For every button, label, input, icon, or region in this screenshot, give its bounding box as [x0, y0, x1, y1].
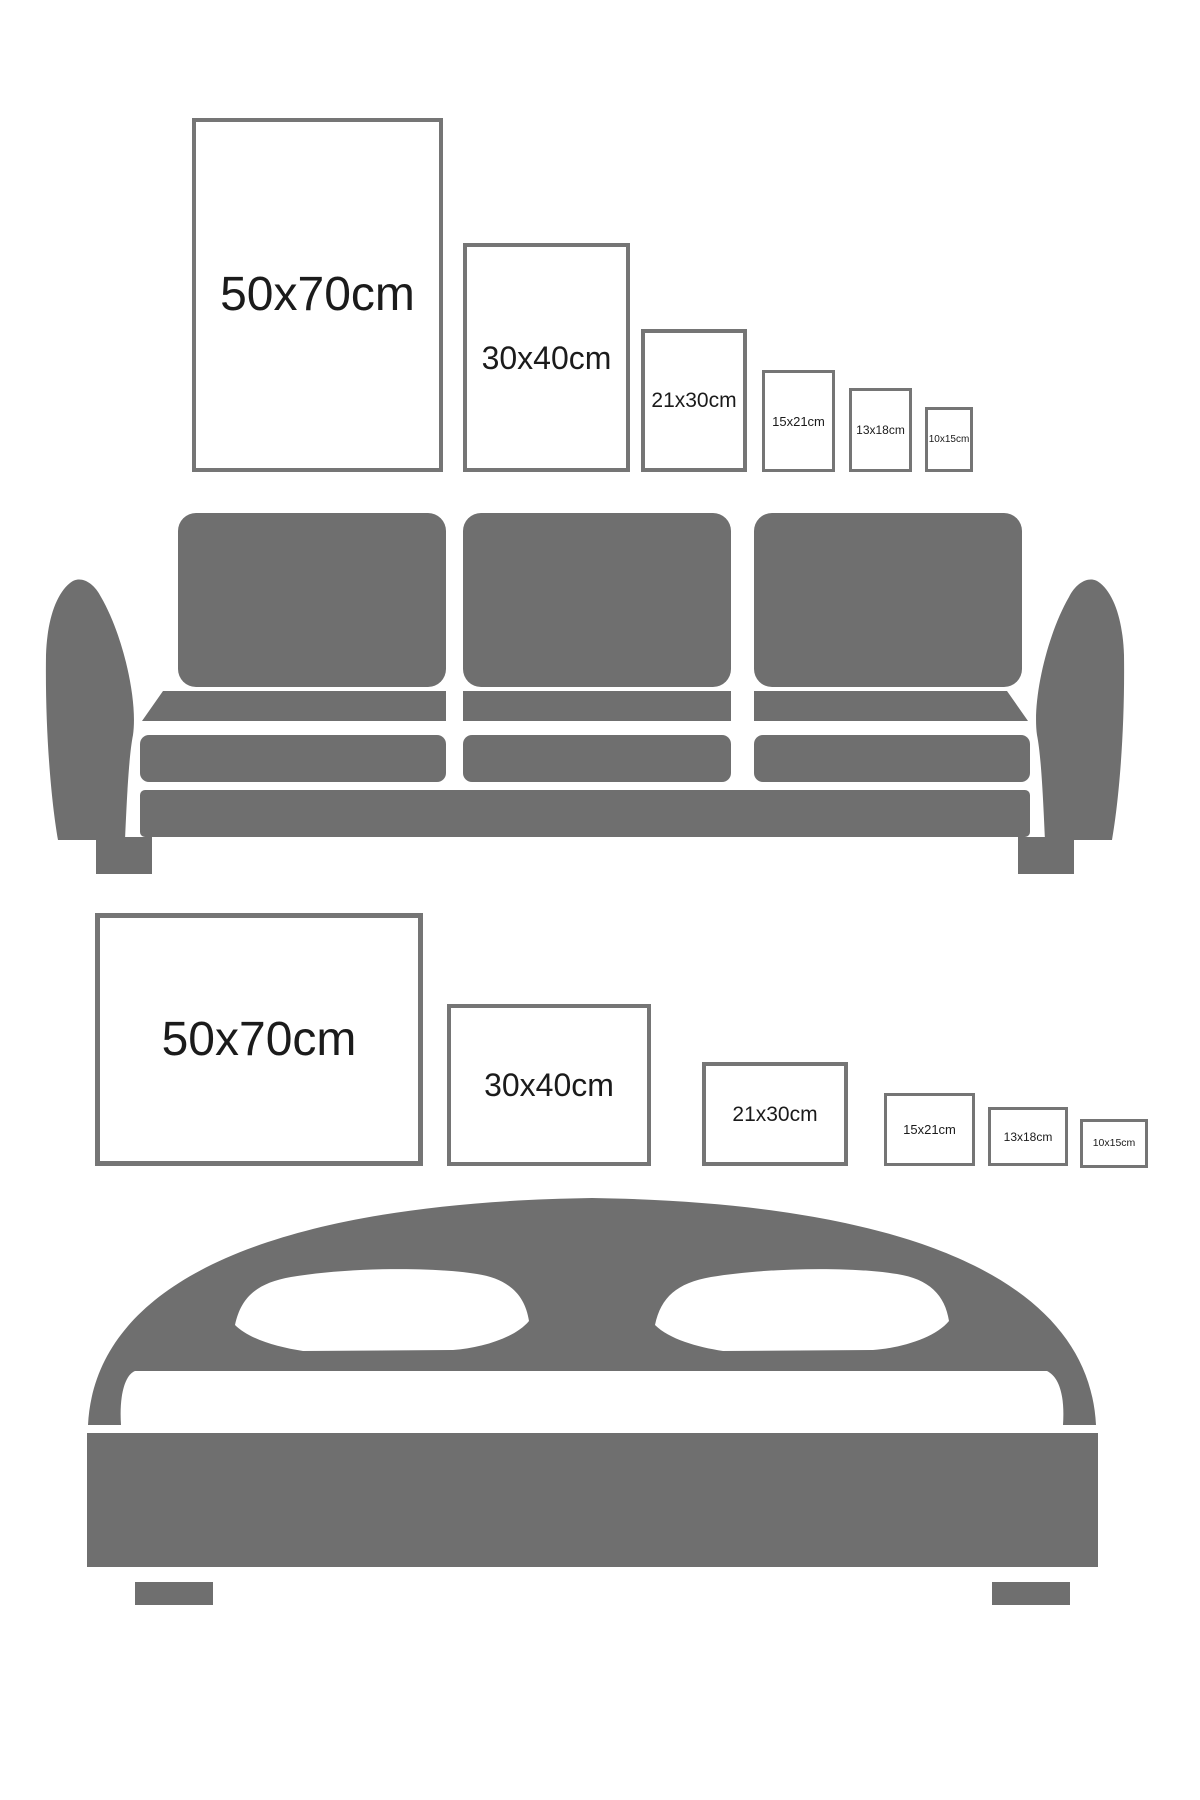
size-frame-landscape-30x40: 30x40cm	[447, 1004, 651, 1166]
sofa-base	[140, 790, 1030, 837]
size-label-30x40: 30x40cm	[484, 1069, 614, 1101]
poster-size-guide-infographic: 50x70cm 30x40cm 21x30cm 15x21cm 13x18cm …	[0, 0, 1200, 1800]
sofa-arm-left	[46, 579, 134, 840]
size-frame-landscape-50x70: 50x70cm	[95, 913, 423, 1166]
size-frame-portrait-15x21: 15x21cm	[762, 370, 835, 472]
size-label-13x18: 13x18cm	[1004, 1131, 1053, 1143]
size-label-13x18: 13x18cm	[856, 424, 905, 436]
size-frame-landscape-21x30: 21x30cm	[702, 1062, 848, 1166]
sofa-seat-deck	[142, 691, 1028, 721]
size-label-15x21: 15x21cm	[772, 415, 825, 428]
bed-base	[87, 1433, 1098, 1567]
bed-illustration	[85, 1195, 1100, 1610]
size-frame-landscape-10x15: 10x15cm	[1080, 1119, 1148, 1168]
sofa-seat-cushion-left	[140, 735, 446, 782]
size-frame-portrait-30x40: 30x40cm	[463, 243, 630, 472]
sofa-foot-right	[1018, 837, 1074, 874]
bed-foot-left	[135, 1582, 213, 1605]
size-label-15x21: 15x21cm	[903, 1123, 956, 1136]
size-frame-portrait-21x30: 21x30cm	[641, 329, 747, 472]
size-label-50x70: 50x70cm	[162, 1016, 357, 1064]
sofa-foot-left	[96, 837, 152, 874]
size-frame-landscape-13x18: 13x18cm	[988, 1107, 1068, 1166]
sofa-illustration	[45, 505, 1125, 875]
size-frame-portrait-10x15: 10x15cm	[925, 407, 973, 472]
sofa-back-cushion-left	[178, 513, 446, 687]
size-label-30x40: 30x40cm	[482, 342, 612, 374]
bed-headboard	[88, 1198, 1096, 1425]
sofa-seat-cushion-right	[754, 735, 1030, 782]
size-frame-portrait-50x70: 50x70cm	[192, 118, 443, 472]
size-frame-portrait-13x18: 13x18cm	[849, 388, 912, 472]
sofa-shape	[46, 513, 1124, 874]
bed-foot-right	[992, 1582, 1070, 1605]
size-label-10x15: 10x15cm	[1093, 1138, 1136, 1149]
sofa-back-cushion-middle	[463, 513, 731, 687]
bed-shape	[87, 1198, 1098, 1605]
sofa-back-cushion-right	[754, 513, 1022, 687]
sofa-seat-cushion-middle	[463, 735, 731, 782]
size-label-50x70: 50x70cm	[220, 271, 415, 319]
sofa-arm-right	[1036, 579, 1124, 840]
size-label-21x30: 21x30cm	[651, 390, 736, 411]
size-label-10x15: 10x15cm	[929, 435, 970, 445]
size-label-21x30: 21x30cm	[732, 1104, 817, 1125]
size-frame-landscape-15x21: 15x21cm	[884, 1093, 975, 1166]
